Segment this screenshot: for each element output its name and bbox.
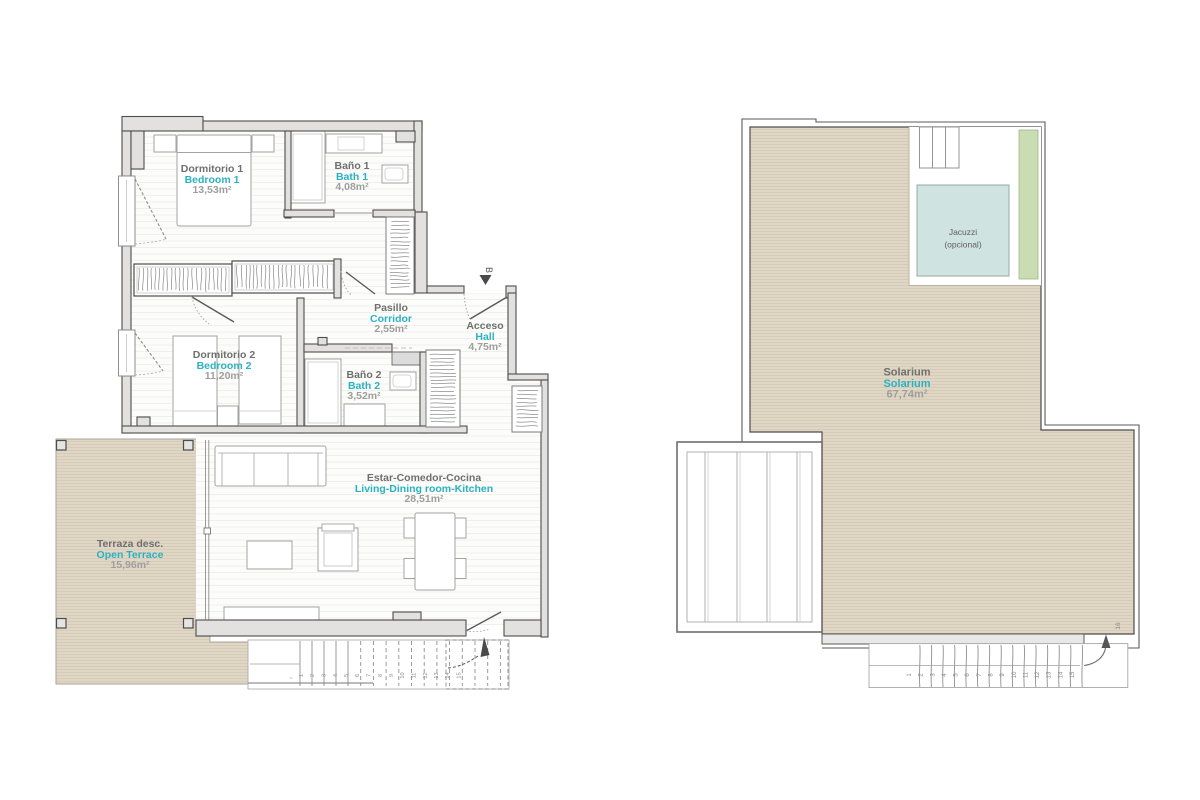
svg-text:(opcional): (opcional) [944,240,981,250]
svg-text:8: 8 [378,674,384,677]
svg-text:7: 7 [367,674,373,677]
svg-text:4,75m²: 4,75m² [468,341,502,353]
svg-text:4: 4 [333,674,339,677]
svg-text:16: 16 [1115,622,1122,630]
svg-text:2,55m²: 2,55m² [374,323,408,335]
svg-text:67,74m²: 67,74m² [887,389,928,401]
svg-text:13: 13 [434,672,440,678]
svg-text:9: 9 [389,674,395,677]
svg-text:15: 15 [457,672,463,678]
svg-text:12: 12 [423,672,429,678]
svg-text:11: 11 [1023,671,1029,678]
svg-text:~: ~ [289,676,293,682]
svg-text:28,51m²: 28,51m² [404,493,444,505]
svg-text:B: B [484,267,494,273]
svg-text:11,20m²: 11,20m² [205,370,244,382]
svg-text:12: 12 [1035,671,1041,678]
svg-text:15,96m²: 15,96m² [110,559,150,571]
svg-text:6: 6 [355,674,361,677]
svg-text:1: 1 [299,674,305,677]
svg-text:10: 10 [1012,671,1018,678]
svg-text:Solarium: Solarium [883,367,930,379]
svg-text:4,08m²: 4,08m² [335,181,369,193]
svg-text:11: 11 [412,673,418,679]
svg-text:14: 14 [1058,671,1064,678]
svg-text:10: 10 [400,672,406,678]
svg-text:3,52m²: 3,52m² [347,390,381,402]
svg-text:15: 15 [1070,671,1076,678]
svg-text:Jacuzzi: Jacuzzi [949,227,977,237]
svg-text:2: 2 [310,674,316,677]
svg-text:3: 3 [322,674,328,677]
svg-text:13: 13 [1047,671,1053,678]
svg-text:13,53m²: 13,53m² [192,184,232,196]
svg-text:5: 5 [344,674,350,677]
svg-text:14: 14 [445,672,451,678]
